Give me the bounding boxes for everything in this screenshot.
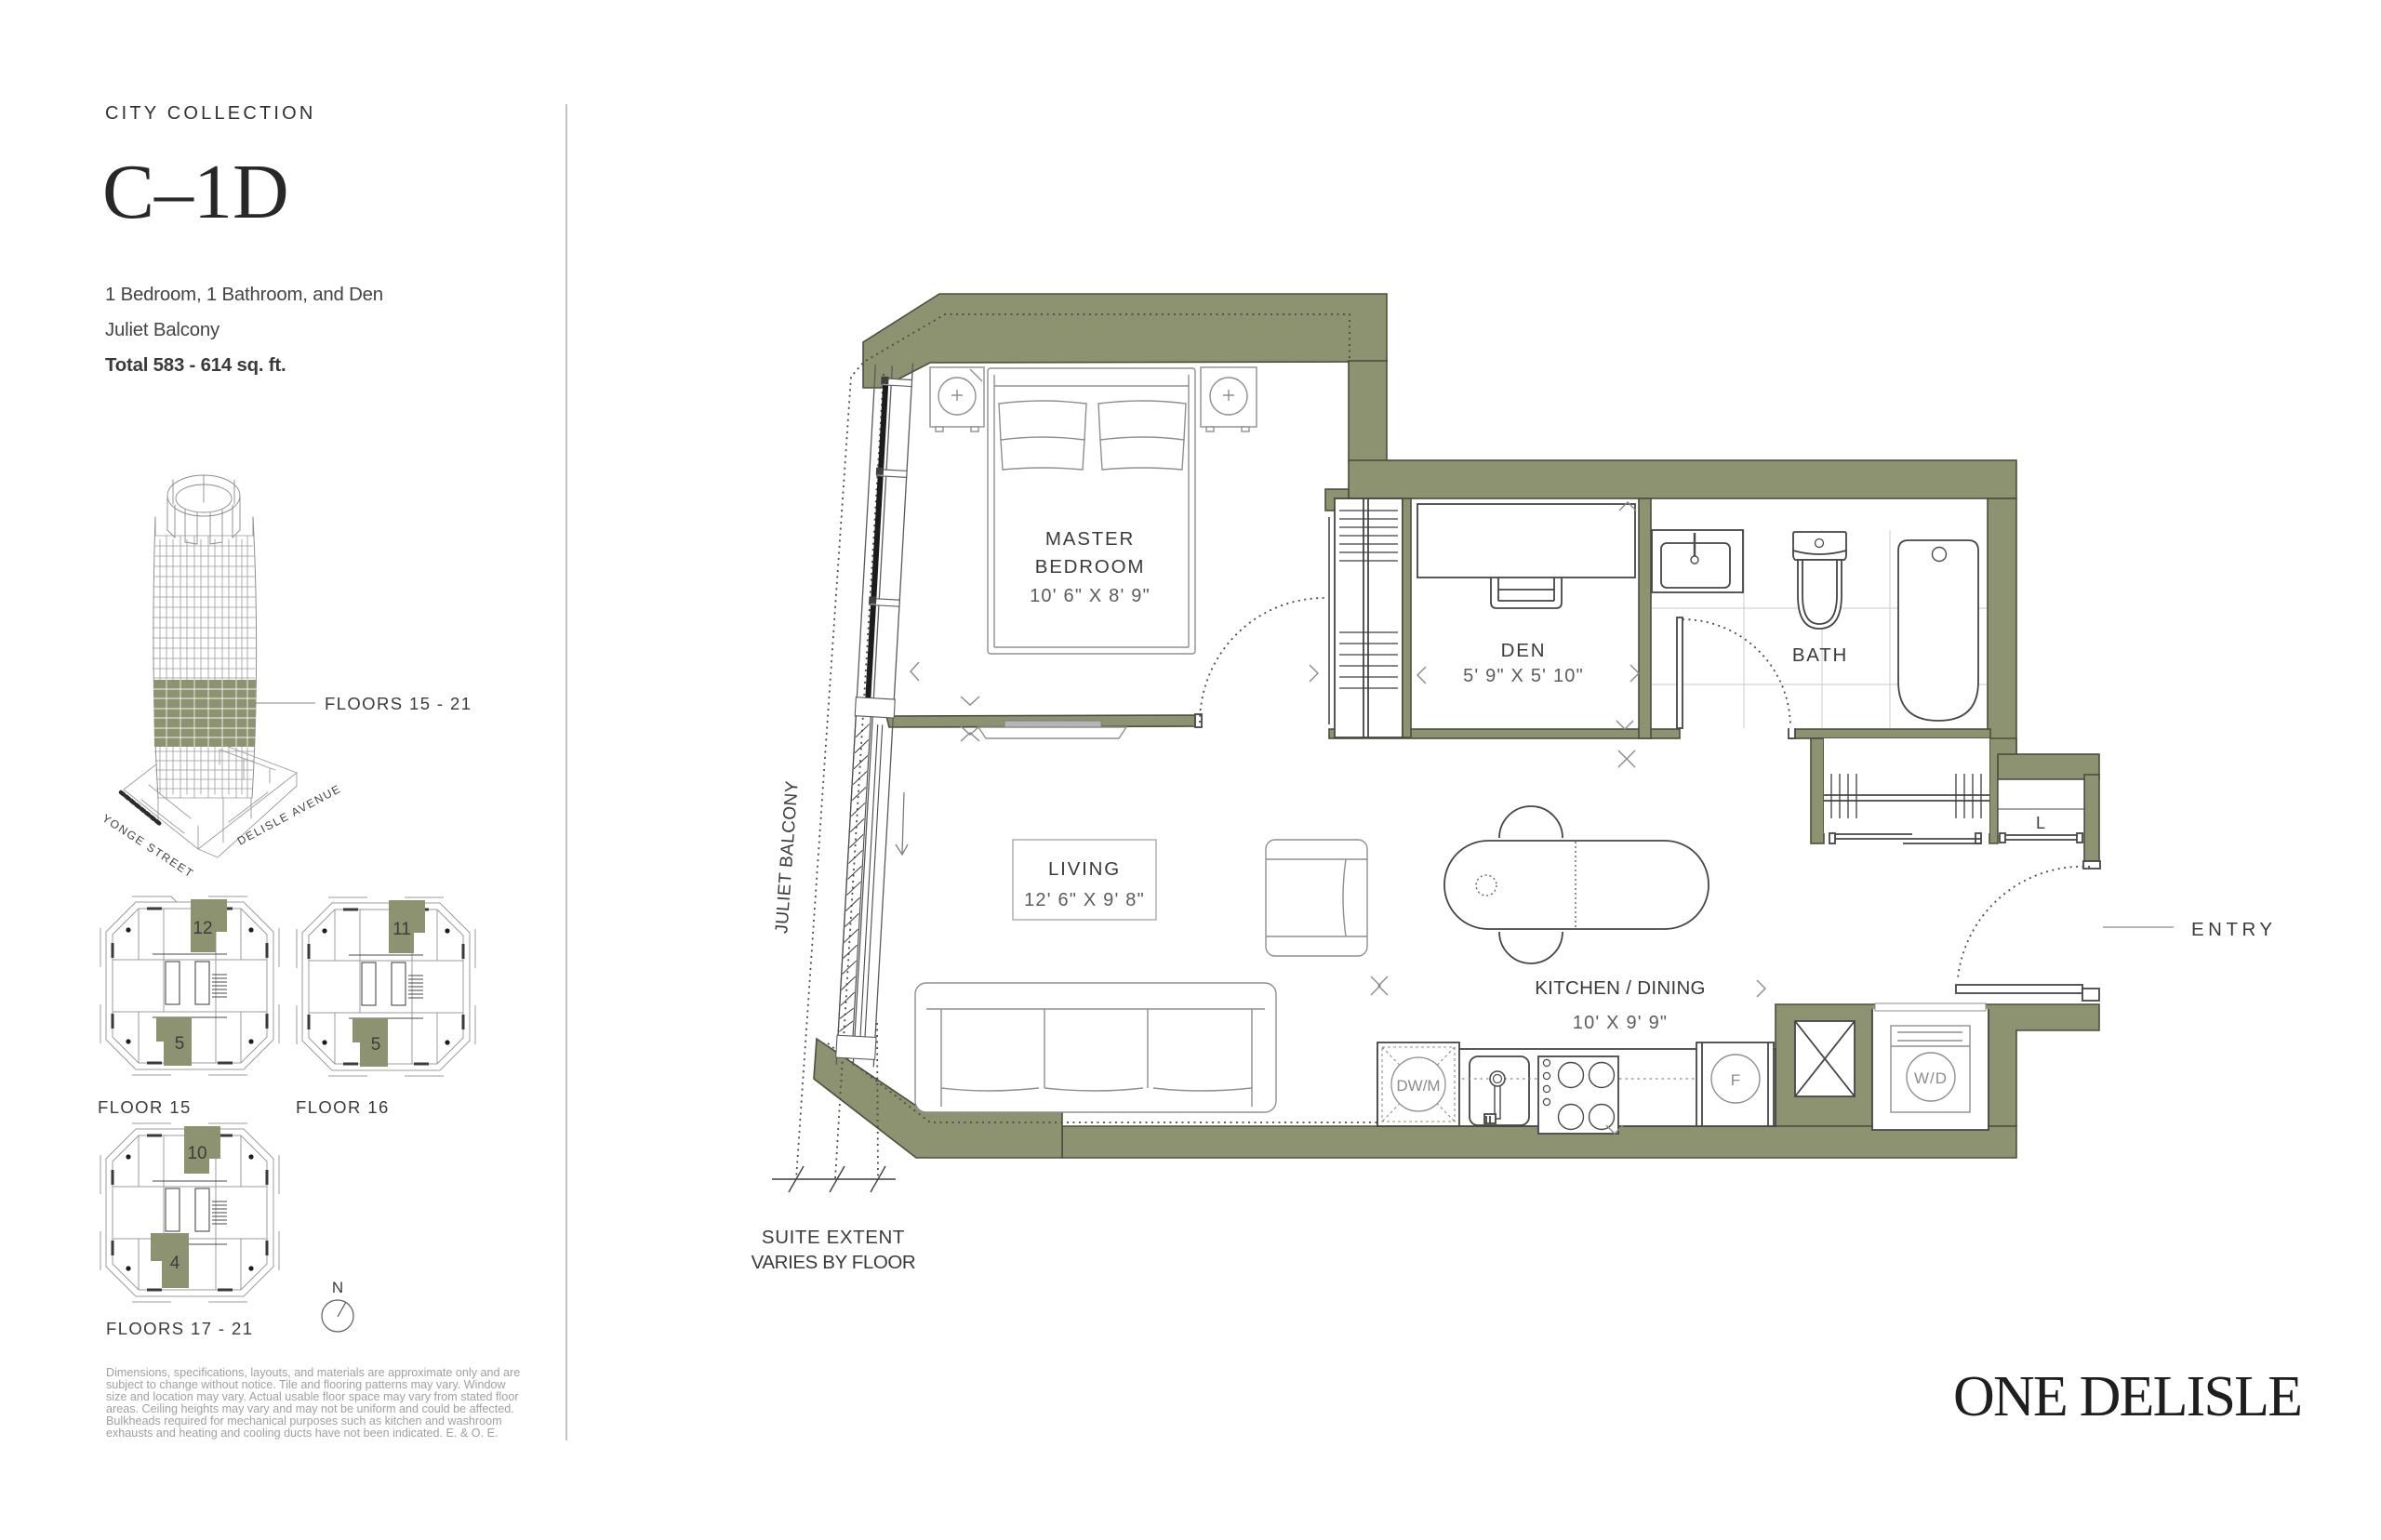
svg-text:5: 5	[371, 1035, 381, 1055]
svg-text:DW/M: DW/M	[1396, 1077, 1440, 1095]
svg-text:size and location may vary. Ac: size and location may vary. Actual usabl…	[106, 1390, 519, 1403]
svg-text:ENTRY: ENTRY	[2191, 919, 2277, 940]
svg-text:12' 6" X 9' 8": 12' 6" X 9' 8"	[1024, 890, 1145, 910]
svg-text:N: N	[332, 1279, 343, 1296]
svg-text:BEDROOM: BEDROOM	[1035, 556, 1146, 577]
svg-text:FLOORS 15 - 21: FLOORS 15 - 21	[325, 694, 472, 713]
svg-text:4: 4	[170, 1254, 180, 1273]
svg-text:ONE DELISLE: ONE DELISLE	[1953, 1365, 2305, 1428]
svg-text:FLOOR 15: FLOOR 15	[98, 1097, 192, 1117]
svg-text:5: 5	[175, 1034, 185, 1054]
svg-text:10' 6" X 8' 9": 10' 6" X 8' 9"	[1030, 586, 1151, 606]
svg-text:Total 583 - 614 sq. ft.: Total 583 - 614 sq. ft.	[105, 355, 286, 376]
svg-text:VARIES BY FLOOR: VARIES BY FLOOR	[752, 1252, 916, 1273]
svg-text:BATH: BATH	[1792, 644, 1848, 666]
svg-text:Juliet Balcony: Juliet Balcony	[105, 320, 220, 340]
svg-text:FLOOR 16: FLOOR 16	[296, 1097, 390, 1117]
svg-text:12: 12	[193, 919, 212, 938]
svg-text:CITY COLLECTION: CITY COLLECTION	[105, 103, 316, 124]
svg-text:subject to change without noti: subject to change without notice. Tile a…	[106, 1378, 506, 1391]
svg-text:exhausts and heating and cooli: exhausts and heating and cooling ducts h…	[106, 1427, 498, 1440]
svg-text:11: 11	[392, 920, 411, 939]
svg-text:L: L	[2036, 814, 2045, 832]
svg-text:FLOORS 17 - 21: FLOORS 17 - 21	[106, 1319, 253, 1338]
svg-text:KITCHEN / DINING: KITCHEN / DINING	[1535, 977, 1706, 999]
svg-text:W/D: W/D	[1914, 1069, 1948, 1087]
svg-text:C–1D: C–1D	[102, 149, 289, 235]
svg-text:areas. Ceiling heights may var: areas. Ceiling heights may vary and may …	[106, 1402, 514, 1415]
svg-text:MASTER: MASTER	[1045, 528, 1135, 550]
svg-text:SUITE EXTENT: SUITE EXTENT	[762, 1227, 905, 1248]
svg-text:10: 10	[187, 1144, 206, 1163]
svg-text:F: F	[1731, 1071, 1740, 1089]
svg-text:LIVING: LIVING	[1048, 858, 1121, 880]
svg-text:5' 9" X 5' 10": 5' 9" X 5' 10"	[1463, 666, 1584, 686]
svg-text:10' X 9' 9": 10' X 9' 9"	[1573, 1013, 1668, 1033]
svg-text:Bulkheads required for mechani: Bulkheads required for mechanical purpos…	[106, 1414, 502, 1427]
svg-text:Dimensions, specifications, la: Dimensions, specifications, layouts, and…	[106, 1366, 520, 1379]
svg-text:DEN: DEN	[1501, 640, 1547, 661]
svg-text:1 Bedroom, 1 Bathroom, and Den: 1 Bedroom, 1 Bathroom, and Den	[105, 285, 383, 305]
